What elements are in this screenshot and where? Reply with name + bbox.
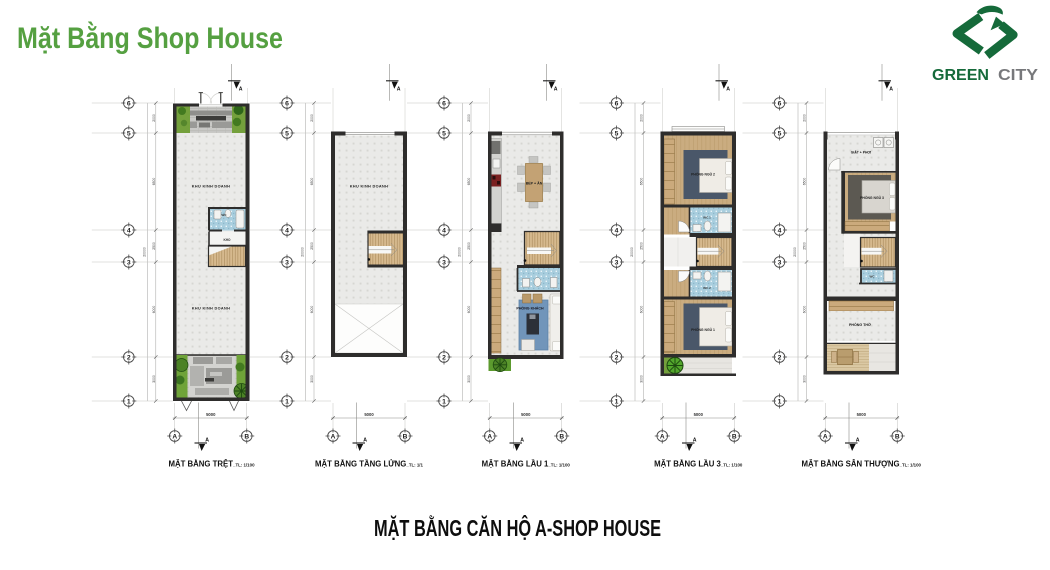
- svg-text:GIẶT + PHƠI: GIẶT + PHƠI: [851, 150, 872, 155]
- svg-text:WC 1: WC 1: [703, 216, 711, 220]
- svg-text:MẶT BẰNG CĂN HỘ A-SHOP HOUSE: MẶT BẰNG CĂN HỘ A-SHOP HOUSE: [374, 514, 661, 541]
- svg-text:WC: WC: [222, 213, 228, 217]
- svg-text:GREEN: GREEN: [932, 67, 989, 84]
- svg-text:PHÒNG KHÁCH: PHÒNG KHÁCH: [516, 306, 544, 311]
- svg-text:KHO: KHO: [223, 238, 231, 242]
- svg-text:PHÒNG NGỦ 2: PHÒNG NGỦ 2: [691, 172, 715, 177]
- svg-text:PHÒNG THỜ: PHÒNG THỜ: [849, 322, 872, 327]
- svg-text:KHU KINH DOANH: KHU KINH DOANH: [192, 185, 230, 189]
- svg-text:Mặt Bằng Shop House: Mặt Bằng Shop House: [17, 21, 283, 55]
- svg-text:KHU KINH DOANH: KHU KINH DOANH: [350, 185, 388, 189]
- svg-text:PHÒNG NGỦ 1: PHÒNG NGỦ 1: [691, 327, 715, 332]
- svg-text:BẾP + ĂN: BẾP + ĂN: [526, 181, 543, 186]
- svg-text:KHU KINH DOANH: KHU KINH DOANH: [192, 307, 230, 311]
- svg-text:WC 2: WC 2: [703, 286, 711, 290]
- svg-text:PHÒNG NGỦ 3: PHÒNG NGỦ 3: [860, 195, 884, 200]
- svg-text:WC: WC: [870, 275, 876, 279]
- svg-text:CITY: CITY: [998, 67, 1038, 84]
